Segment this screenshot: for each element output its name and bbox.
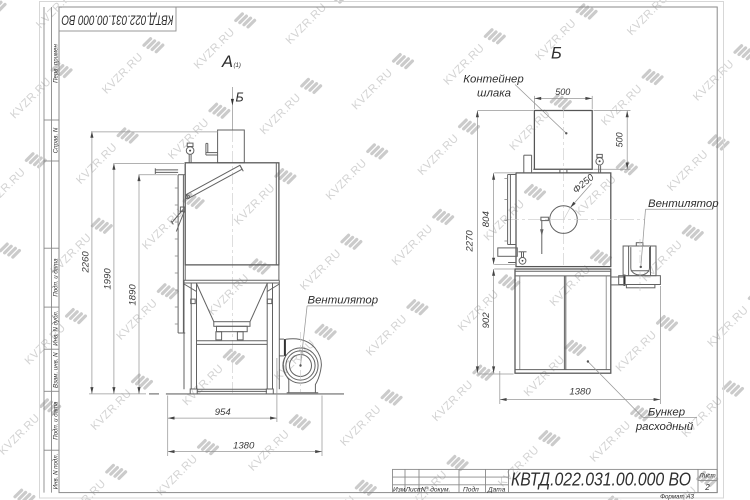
svg-text:КВТД.022.031.00.000 ВО: КВТД.022.031.00.000 ВО	[511, 470, 691, 490]
svg-text:804: 804	[481, 211, 492, 227]
svg-text:КВТД.022.031.00.000 ВО: КВТД.022.031.00.000 ВО	[61, 13, 173, 28]
svg-text:1890: 1890	[127, 284, 138, 306]
svg-text:Подп. и дата: Подп. и дата	[52, 258, 59, 297]
svg-text:шлака: шлака	[477, 88, 511, 100]
svg-text:Подп. и дата: Подп. и дата	[52, 401, 59, 440]
svg-text:2: 2	[704, 483, 710, 492]
svg-text:Вентилятор: Вентилятор	[308, 295, 379, 307]
svg-text:Вентилятор: Вентилятор	[648, 198, 719, 210]
svg-text:расходный: расходный	[635, 421, 694, 433]
svg-text:Взам. инв. N: Взам. инв. N	[52, 352, 59, 388]
svg-text:Инв. N дубл.: Инв. N дубл.	[52, 310, 59, 345]
svg-text:Бункер: Бункер	[648, 407, 685, 419]
svg-text:Б: Б	[236, 91, 244, 105]
svg-text:А: А	[221, 53, 233, 71]
svg-text:1990: 1990	[102, 268, 113, 290]
svg-text:Б: Б	[551, 45, 562, 63]
svg-text:Формат А3: Формат А3	[660, 494, 694, 500]
svg-text:Инв. N подл.: Инв. N подл.	[52, 454, 59, 490]
svg-text:Контейнер: Контейнер	[463, 74, 523, 86]
svg-text:Перв. примен: Перв. примен	[52, 43, 59, 82]
svg-text:902: 902	[481, 312, 492, 329]
svg-text:500: 500	[614, 132, 624, 147]
svg-text:N° докум.: N° докум.	[421, 485, 450, 493]
svg-text:2260: 2260	[80, 251, 91, 274]
svg-text:Дата: Дата	[487, 486, 506, 493]
svg-text:Изм: Изм	[393, 486, 406, 493]
svg-text:1380: 1380	[569, 387, 591, 398]
svg-text:Справ. N: Справ. N	[52, 127, 59, 153]
svg-text:1380: 1380	[233, 440, 255, 451]
svg-text:954: 954	[215, 407, 231, 418]
svg-text:2270: 2270	[464, 230, 475, 253]
svg-text:(1): (1)	[234, 63, 241, 69]
svg-text:500: 500	[555, 87, 570, 97]
svg-text:Подп: Подп	[463, 485, 479, 493]
svg-text:Лист: Лист	[698, 473, 716, 480]
